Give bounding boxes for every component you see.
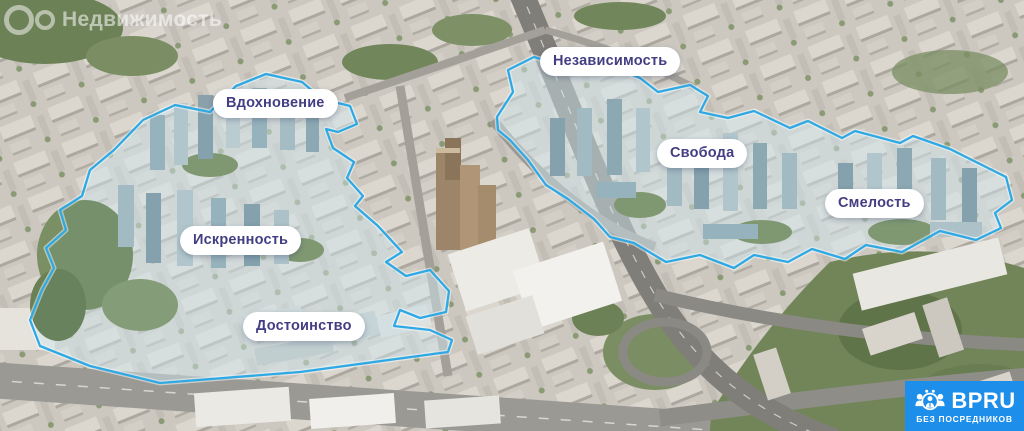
brand-logo-text: BPRU bbox=[951, 390, 1015, 412]
district-label-smelost[interactable]: Смелость bbox=[825, 189, 924, 218]
district-label-dostoinstvo[interactable]: Достоинство bbox=[243, 312, 365, 341]
district-label-svoboda[interactable]: Свобода bbox=[657, 139, 747, 168]
brand-badge-top: BPRU bbox=[913, 388, 1015, 413]
brand-tagline: БЕЗ ПОСРЕДНИКОВ bbox=[916, 415, 1012, 424]
people-key-icon bbox=[913, 388, 947, 413]
district-label-iskrennost[interactable]: Искренность bbox=[180, 226, 301, 255]
aerial-render-screenshot: Недвижимость Вдохновение Независимость С… bbox=[0, 0, 1024, 431]
district-label-vdokhnovenie[interactable]: Вдохновение bbox=[213, 89, 338, 118]
brand-badge[interactable]: BPRU БЕЗ ПОСРЕДНИКОВ bbox=[905, 381, 1024, 431]
district-label-nezavisimost[interactable]: Независимость bbox=[540, 47, 680, 76]
